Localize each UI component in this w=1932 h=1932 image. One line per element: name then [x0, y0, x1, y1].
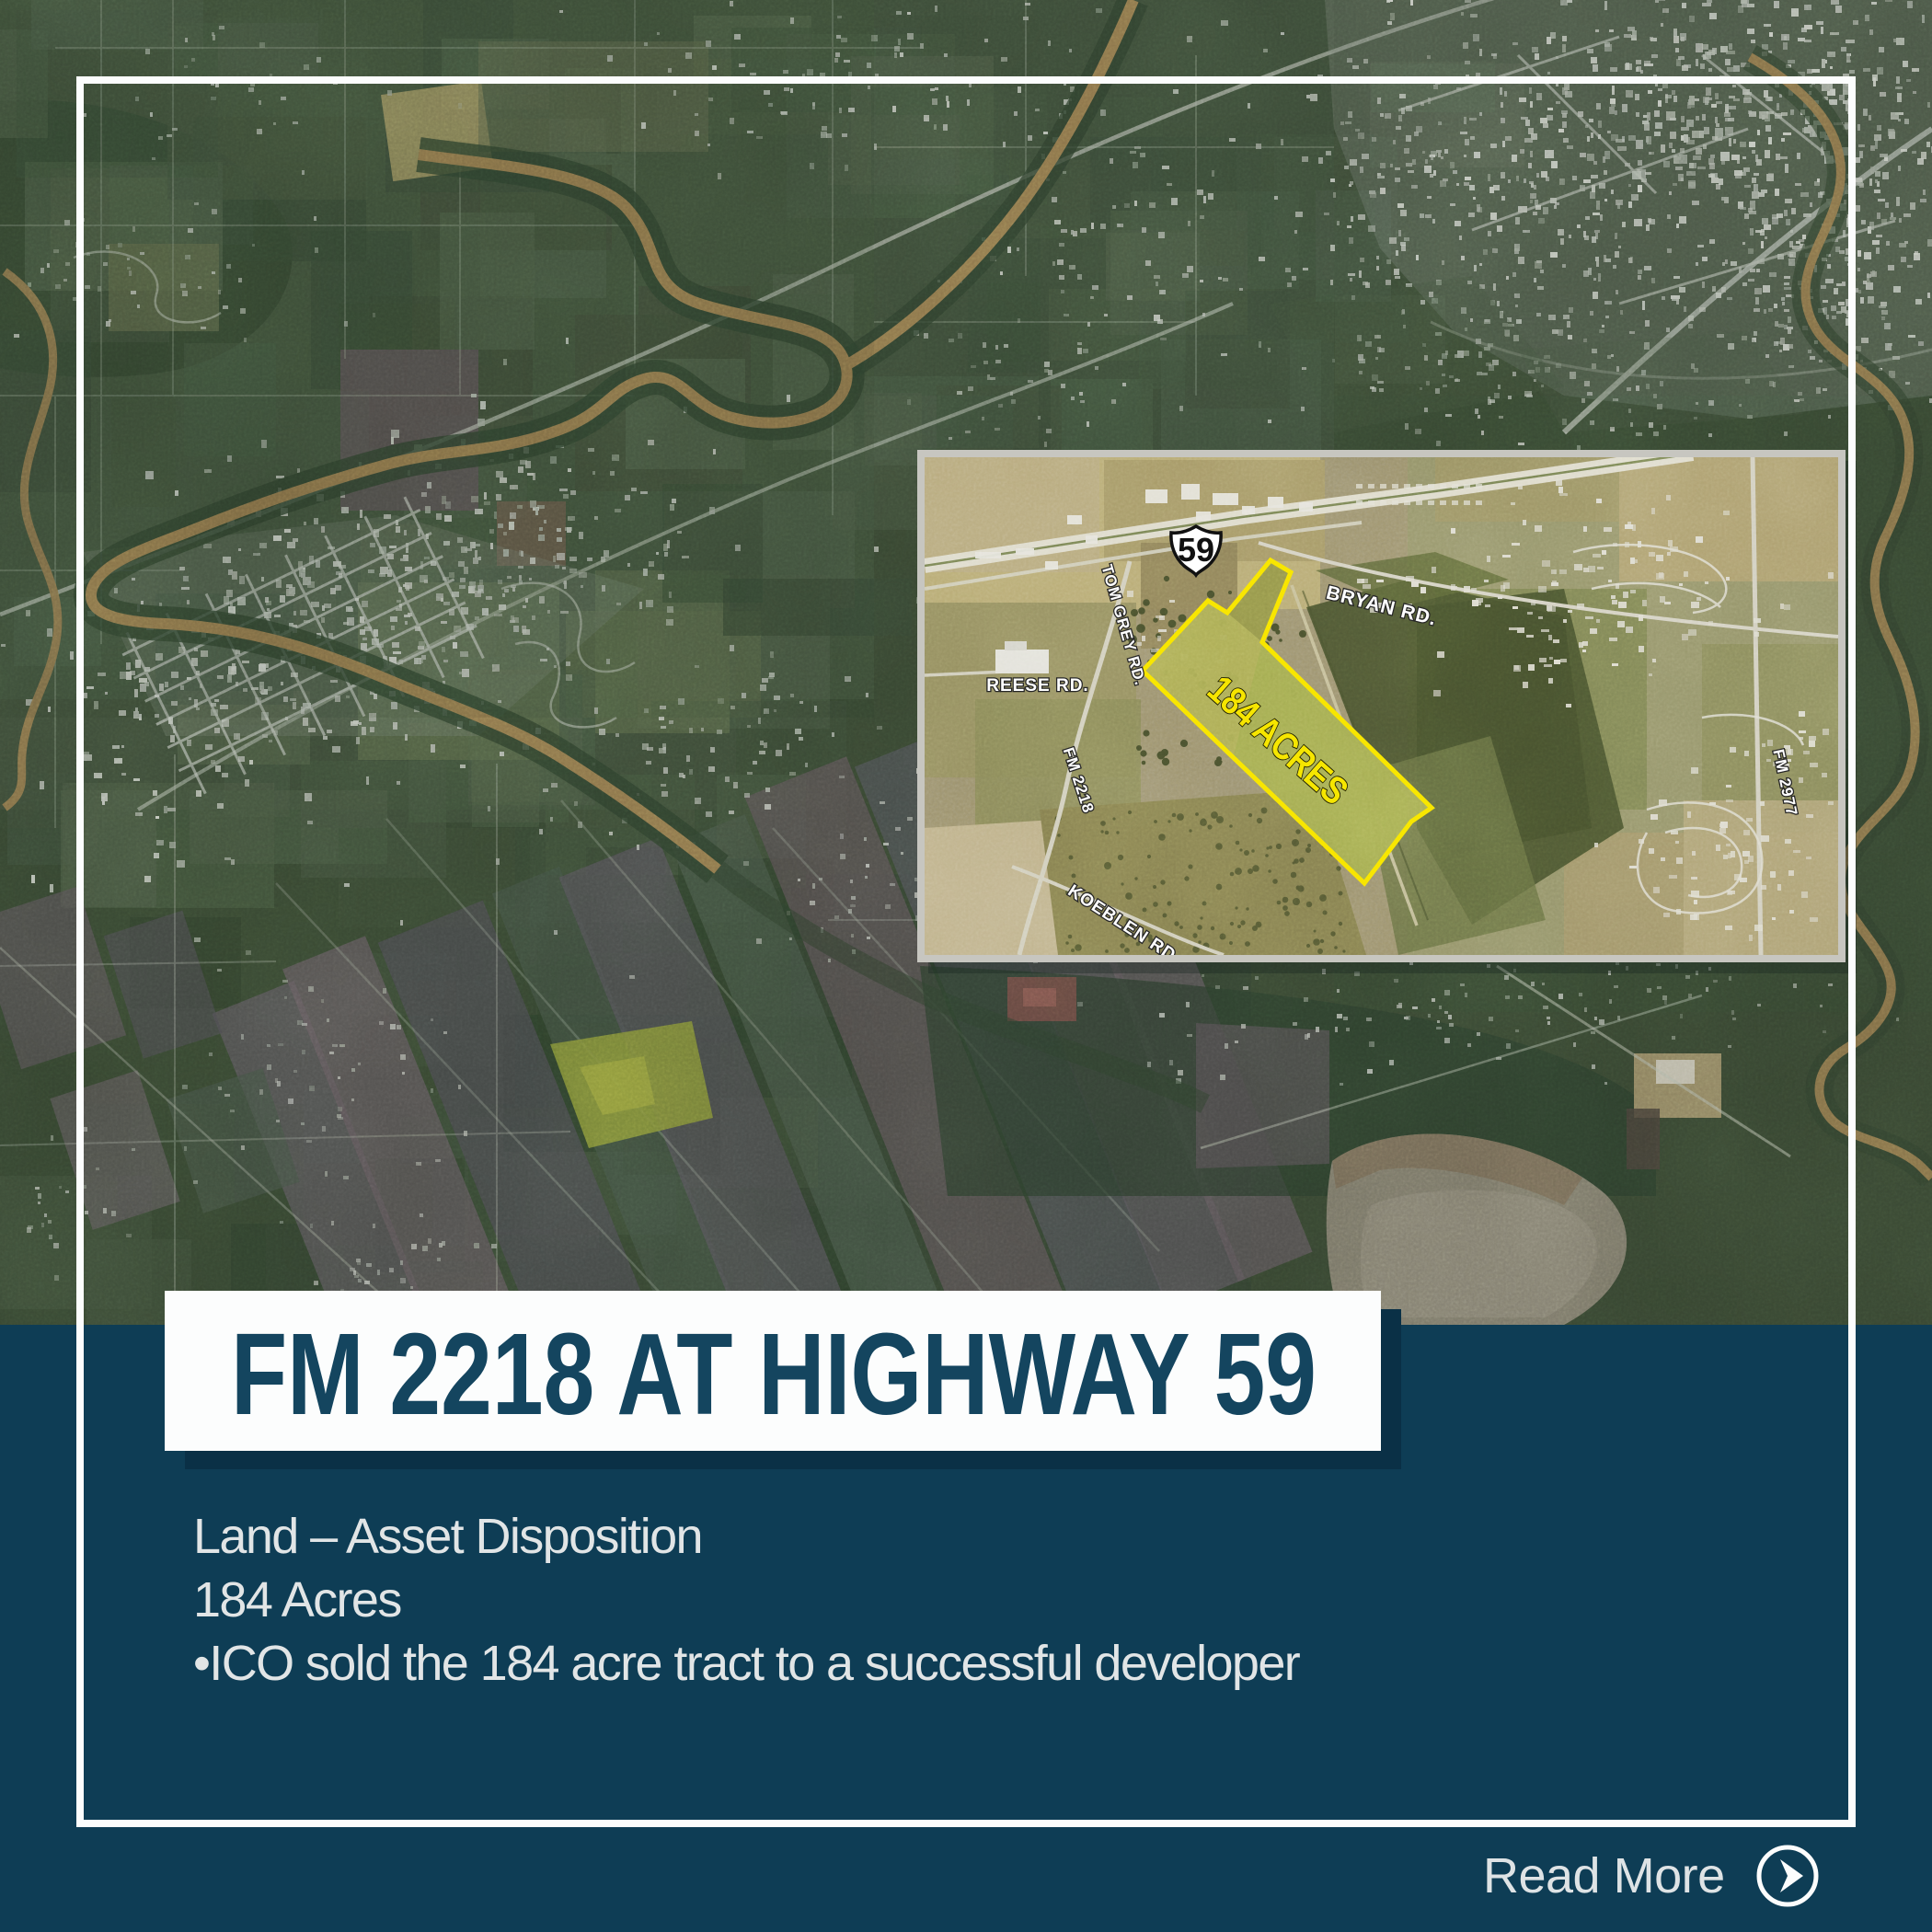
svg-text:•ICO sold the 184 acre tract t: •ICO sold the 184 acre tract to a succes… [193, 1636, 1301, 1691]
svg-text:FM 2218 AT HIGHWAY 59: FM 2218 AT HIGHWAY 59 [231, 1309, 1317, 1439]
svg-text:Land – Asset Disposition: Land – Asset Disposition [193, 1509, 702, 1564]
svg-text:184 Acres: 184 Acres [193, 1572, 401, 1627]
svg-text:Read More: Read More [1483, 1848, 1725, 1903]
svg-text:59: 59 [1178, 531, 1214, 569]
